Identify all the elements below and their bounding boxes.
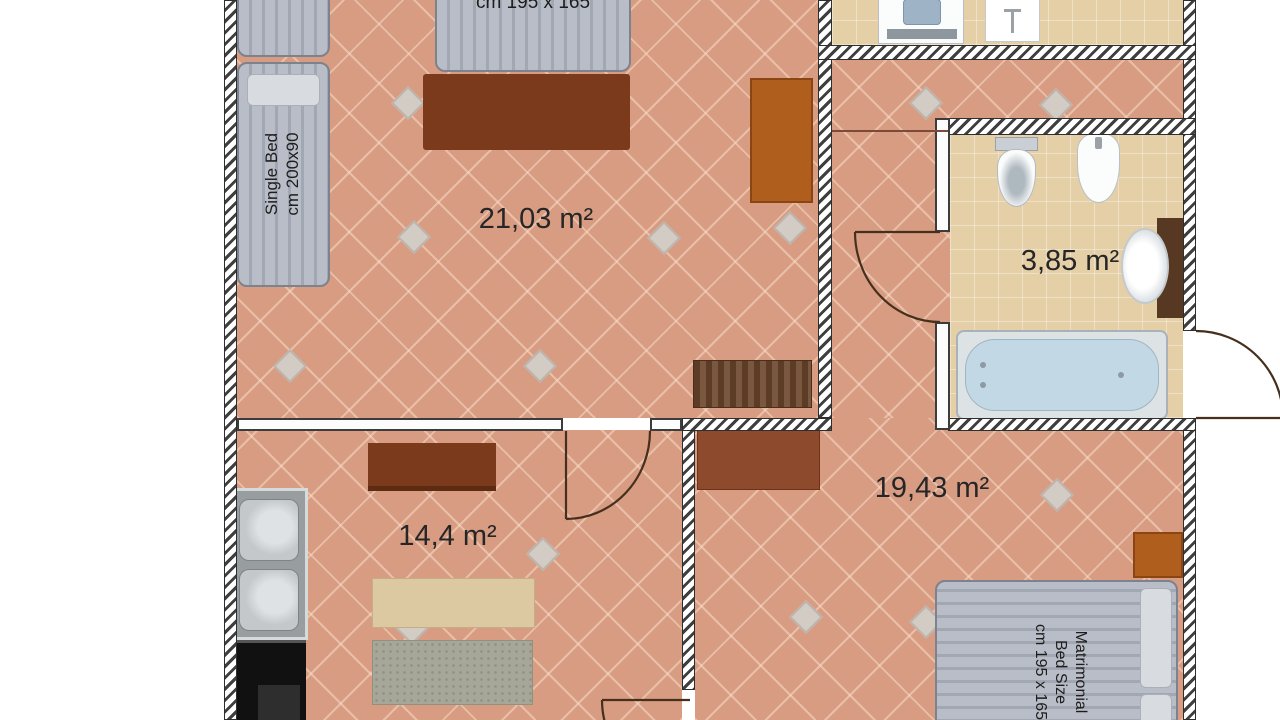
- nightstand: [1133, 532, 1183, 578]
- wall-bathroom-north: [948, 118, 1196, 135]
- double-bed-right-label: Matrimonial Bed Size cm 195 x 165: [1030, 572, 1090, 720]
- floor-plan: 21,03 m² 3,85 m² 19,43 m² 14,4 m² Single…: [0, 0, 1280, 720]
- sink-basin: [239, 569, 299, 631]
- room-area-kitchen: 14,4 m²: [360, 520, 535, 553]
- wall-exterior-left: [224, 0, 237, 720]
- bathtub-drain: [1118, 372, 1124, 378]
- wall-exterior-right-lower: [1183, 418, 1196, 720]
- wardrobe: [750, 78, 813, 203]
- bidet-faucet: [1004, 9, 1021, 12]
- room-area-bathroom: 3,85 m²: [975, 245, 1165, 278]
- bathtub-faucet: [980, 362, 986, 368]
- room-area-bedroom: 21,03 m²: [445, 203, 627, 236]
- kitchen-rug: [372, 640, 533, 705]
- wall-bedroom-south-a: [237, 418, 563, 431]
- stove-panel: [258, 685, 300, 720]
- bidet-faucet: [1011, 11, 1014, 33]
- wall-kitchen-east: [682, 430, 695, 690]
- bidet-small-bath: [985, 0, 1040, 42]
- bathtub-faucet: [980, 382, 986, 388]
- stove: [230, 640, 306, 720]
- wall-bathroom-west-lower: [935, 322, 950, 430]
- door-entry-arc: [1196, 331, 1280, 418]
- wall-bathroom-west-upper: [935, 118, 950, 232]
- kitchen-table: [372, 578, 535, 628]
- wall-bathroom-south: [948, 418, 1196, 431]
- bathtub: [956, 330, 1168, 420]
- toilet: [993, 137, 1040, 207]
- single-bed-1-label: Single Bed cm 200x90: [261, 0, 305, 25]
- toilet-base: [887, 29, 957, 39]
- bedroom-rug: [423, 74, 630, 150]
- single-bed-2-label: Single Bed cm 200x90: [261, 99, 305, 249]
- bathtub-basin: [965, 339, 1159, 411]
- bidet-faucet: [1095, 137, 1102, 149]
- wall-bedroom-east: [818, 0, 832, 418]
- kitchen-sink: [230, 488, 308, 640]
- bidet: [1075, 133, 1122, 203]
- toilet-bowl: [997, 149, 1036, 207]
- toilet-lid: [903, 0, 941, 25]
- wall-bedroom-south-east: [682, 418, 832, 431]
- pillow: [1140, 588, 1172, 688]
- toilet-small-bath: [878, 0, 964, 44]
- wall-small-bath-south: [818, 45, 1196, 60]
- dresser-bedroom: [693, 360, 812, 408]
- sink-basin: [239, 499, 299, 561]
- dresser-living: [697, 427, 820, 490]
- double-bed-top-label: Matrimonial Bed Size cm 195 x 165: [435, 0, 631, 14]
- room-area-living: 19,43 m²: [840, 472, 1024, 505]
- dresser-kitchen: [368, 443, 496, 491]
- wall-bedroom-south-b: [650, 418, 682, 431]
- pillow: [1140, 694, 1172, 720]
